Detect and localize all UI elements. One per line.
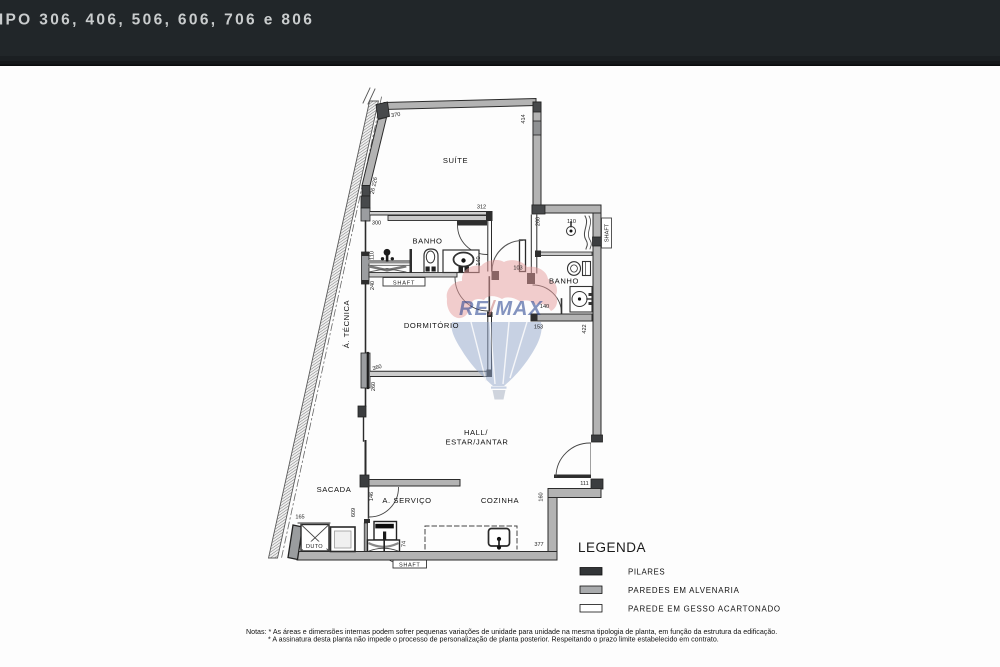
svg-text:300: 300 bbox=[372, 221, 381, 227]
svg-text:TIPO 306, 406, 506, 606, 706 e: TIPO 306, 406, 506, 606, 706 e 806 bbox=[0, 11, 314, 28]
svg-text:74: 74 bbox=[402, 541, 408, 547]
svg-text:165: 165 bbox=[295, 515, 304, 521]
svg-text:140: 140 bbox=[540, 304, 549, 310]
svg-text:260: 260 bbox=[536, 217, 542, 226]
svg-text:SHAFT: SHAFT bbox=[399, 562, 420, 568]
svg-text:377: 377 bbox=[534, 542, 543, 548]
svg-text:DORMITÓRIO: DORMITÓRIO bbox=[404, 321, 459, 330]
svg-text:RE/MAX: RE/MAX bbox=[459, 298, 543, 320]
svg-text:240: 240 bbox=[370, 281, 376, 290]
svg-text:SUÍTE: SUÍTE bbox=[443, 156, 468, 165]
svg-text:LEGENDA: LEGENDA bbox=[578, 540, 646, 555]
svg-text:BANHO: BANHO bbox=[549, 277, 579, 286]
svg-text:COZINHA: COZINHA bbox=[481, 496, 520, 505]
svg-text:414: 414 bbox=[521, 114, 527, 123]
svg-text:HALL/: HALL/ bbox=[464, 428, 488, 437]
svg-text:312: 312 bbox=[477, 205, 486, 211]
svg-text:111: 111 bbox=[580, 481, 589, 487]
svg-text:ESTAR/JANTAR: ESTAR/JANTAR bbox=[445, 438, 508, 447]
svg-text:PILARES: PILARES bbox=[628, 568, 665, 577]
svg-text:PAREDE EM GESSO ACARTONADO: PAREDE EM GESSO ACARTONADO bbox=[628, 605, 781, 614]
svg-text:Á. TÉCNICA: Á. TÉCNICA bbox=[342, 299, 351, 348]
svg-text:A. SERVIÇO: A. SERVIÇO bbox=[382, 496, 431, 505]
svg-text:153: 153 bbox=[534, 325, 543, 331]
svg-text:110: 110 bbox=[370, 251, 376, 260]
svg-text:BANHO: BANHO bbox=[412, 237, 442, 246]
svg-text:SHAFT: SHAFT bbox=[393, 280, 415, 286]
svg-text:370: 370 bbox=[391, 112, 401, 119]
svg-text:* A assinatura desta planta nã: * A assinatura desta planta não impede o… bbox=[268, 636, 719, 644]
svg-text:160: 160 bbox=[539, 492, 545, 501]
svg-text:609: 609 bbox=[351, 508, 357, 517]
svg-text:PAREDES EM ALVENARIA: PAREDES EM ALVENARIA bbox=[628, 586, 740, 595]
svg-text:260: 260 bbox=[371, 382, 377, 391]
svg-text:110: 110 bbox=[567, 219, 576, 225]
svg-text:422: 422 bbox=[582, 324, 588, 333]
svg-text:140: 140 bbox=[476, 256, 482, 265]
svg-text:SHAFT: SHAFT bbox=[605, 223, 611, 242]
svg-text:DUTO: DUTO bbox=[306, 544, 323, 550]
svg-text:SACADA: SACADA bbox=[317, 485, 352, 494]
svg-text:103: 103 bbox=[513, 266, 522, 272]
svg-text:146: 146 bbox=[369, 492, 375, 501]
